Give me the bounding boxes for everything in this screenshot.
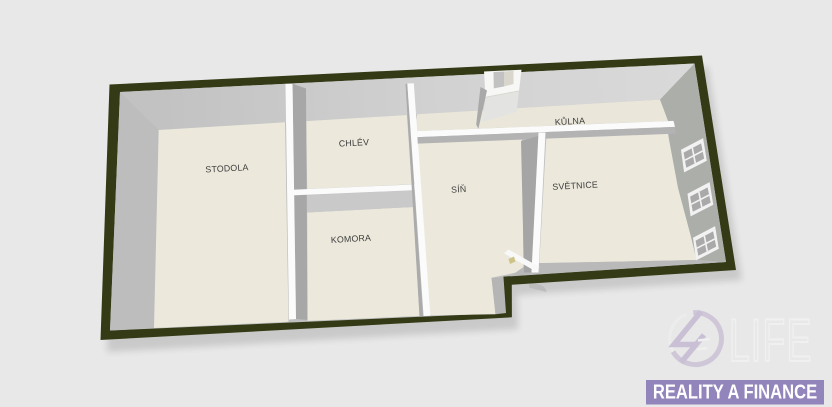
svg-text:CHLÉV: CHLÉV (339, 137, 370, 149)
svg-text:KŮLNA: KŮLNA (554, 114, 585, 127)
svg-text:SÍŇ: SÍŇ (451, 184, 467, 195)
svg-text:LIFE: LIFE (729, 307, 813, 374)
svg-text:REALITY A FINANCE: REALITY A FINANCE (653, 380, 817, 403)
